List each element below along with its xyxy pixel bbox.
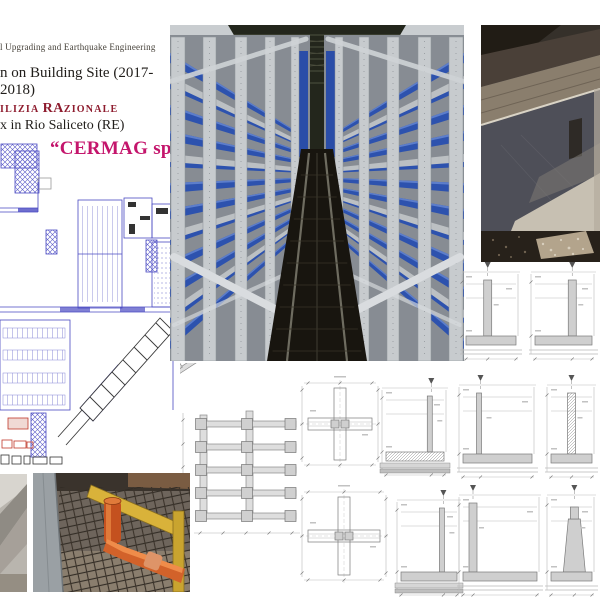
plan-black-details (128, 202, 168, 234)
foundation-detail-drawings (290, 255, 600, 600)
foundation-section-detail (460, 262, 522, 361)
foundation-plan-drawing (180, 363, 306, 537)
foundation-node-plan-detail (300, 485, 388, 583)
presentation-page: l Upgrading and Earthquake Engineering n… (0, 0, 600, 600)
floor-plan-drawing (0, 142, 174, 468)
foundation-section-detail (380, 378, 450, 477)
company-name-initials: RA (43, 101, 64, 116)
plan-annex-wing (58, 318, 173, 445)
company-name-suffix: ZIONALE (64, 104, 119, 115)
project-title: n on Building Site (2017-2018) (0, 65, 178, 99)
company-name-prefix: ILIZIA (0, 104, 39, 115)
foundation-section-detail (545, 485, 598, 597)
photo-beam (569, 118, 582, 159)
rebar-formwork-photo (33, 473, 190, 592)
foundation-section-detail (457, 375, 538, 479)
foundation-section-detail (545, 375, 598, 479)
concrete-structure-photo (481, 25, 600, 262)
company-name: ILIZIA RAZIONALE (0, 101, 178, 117)
foundation-node-plan-detail (300, 376, 380, 468)
plan-red-fixtures (2, 418, 33, 448)
construction-photo-small (0, 474, 27, 592)
location-line: x in Rio Saliceto (RE) (0, 118, 178, 134)
course-title: l Upgrading and Earthquake Engineering (0, 42, 178, 52)
foundation-section-detail (457, 485, 543, 597)
foundation-section-detail (529, 262, 598, 361)
foundation-section-detail (395, 490, 463, 597)
